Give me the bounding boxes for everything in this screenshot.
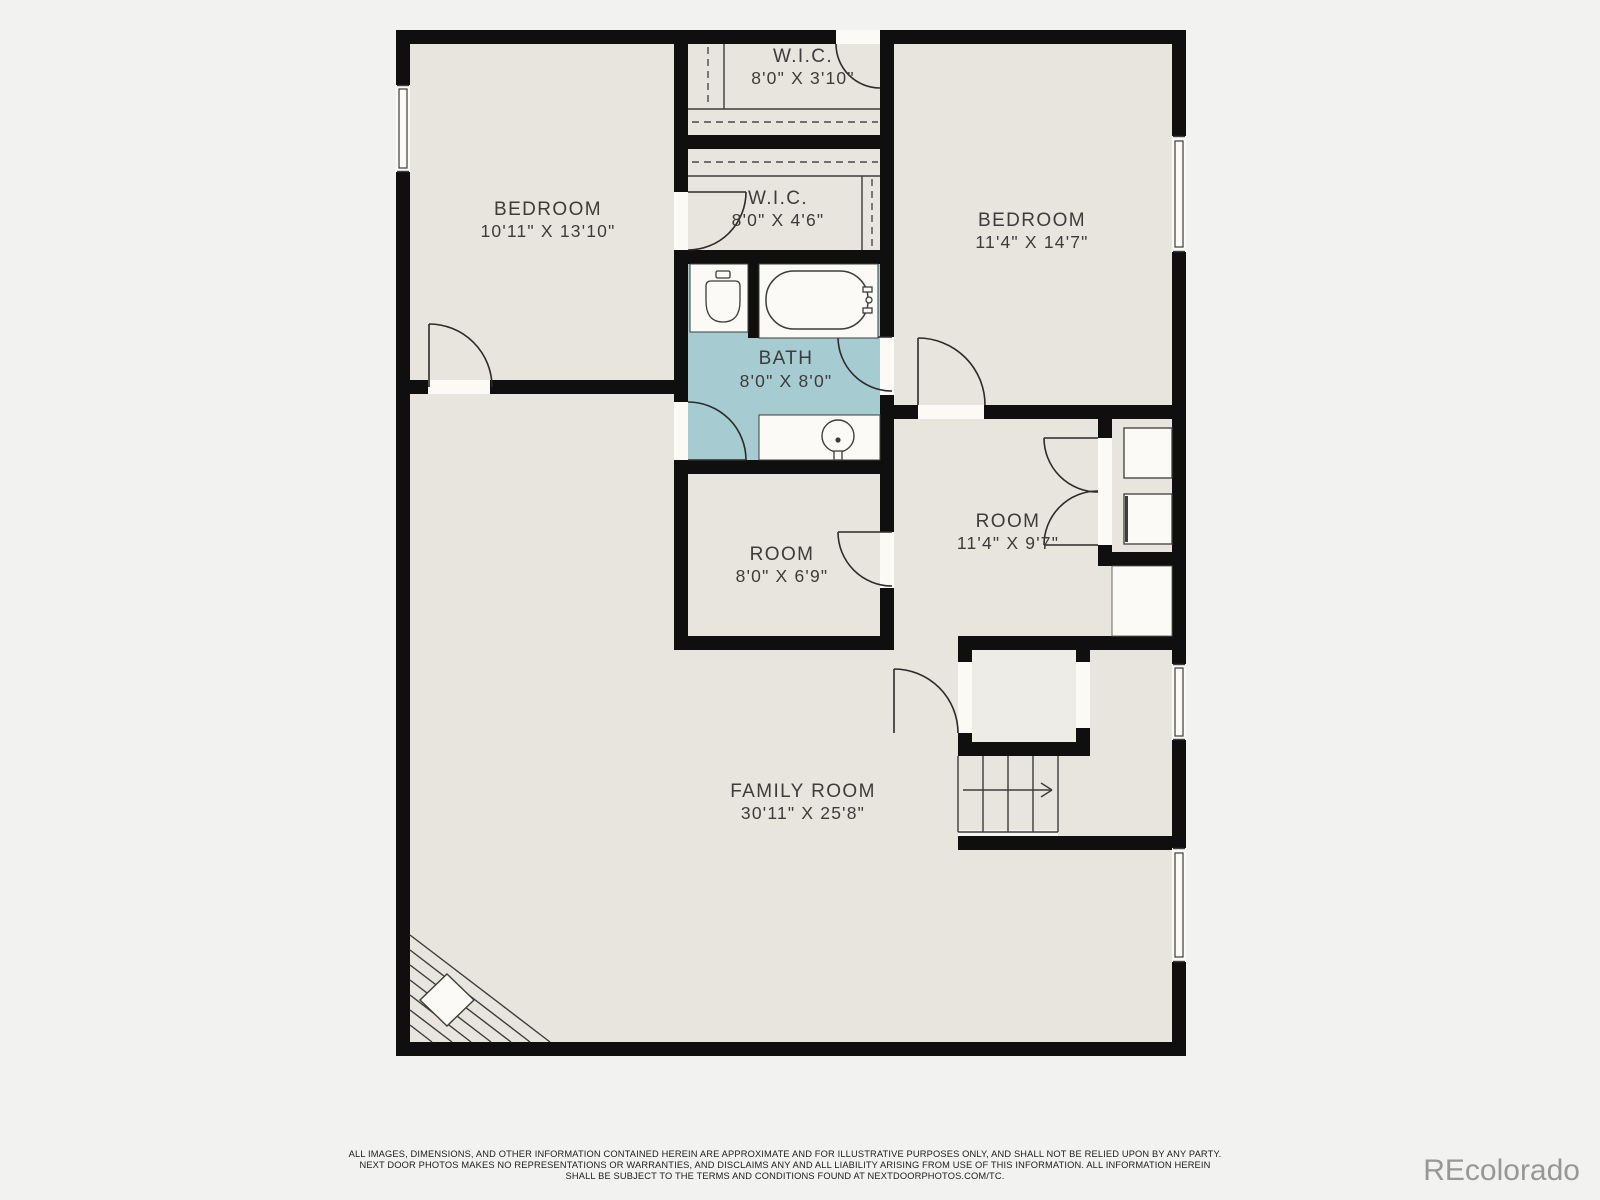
opening-bedroom-right-door: [918, 405, 984, 419]
window-bedroom-right: [1172, 136, 1186, 252]
wall-bath-top: [674, 250, 894, 264]
opening-bath-left-door: [674, 402, 688, 460]
wall-wic-divider: [674, 135, 894, 149]
floor-plan-canvas: W.I.C. 8'0" X 3'10" W.I.C. 8'0" X 4'6" B…: [0, 0, 1600, 1200]
floor-base: [396, 30, 1186, 1056]
outer-wall-bottom: [396, 1042, 1186, 1056]
wall-landing-top: [958, 636, 1186, 650]
wall-mid-left: [674, 44, 688, 650]
opening-landing-right: [1076, 662, 1090, 728]
wall-toilet-stub: [748, 264, 759, 338]
wall-stair-lower: [958, 836, 1186, 850]
opening-wic-top-door: [836, 30, 880, 44]
label-wic-mid-dims: 8'0" X 4'6": [732, 210, 825, 230]
opening-wic-mid-door: [674, 192, 688, 250]
floor-plan-page: W.I.C. 8'0" X 3'10" W.I.C. 8'0" X 4'6" B…: [0, 0, 1600, 1200]
label-room-middle-name: ROOM: [750, 544, 815, 565]
bathtub-icon: [759, 264, 878, 338]
closet-alcove: [1112, 566, 1172, 636]
floor-fills: [396, 30, 1186, 1056]
sink-vanity-icon: [759, 415, 880, 460]
opening-closet-doors: [1098, 438, 1112, 545]
appliance-box-upper: [1124, 428, 1172, 478]
disclaimer-line-2: NEXT DOOR PHOTOS MAKES NO REPRESENTATION…: [359, 1160, 1210, 1170]
label-bedroom-left-name: BEDROOM: [494, 199, 602, 220]
label-bedroom-left-dims: 10'11" X 13'10": [480, 221, 615, 241]
label-family-room-name: FAMILY ROOM: [730, 781, 876, 802]
label-bath-dims: 8'0" X 8'0": [740, 371, 833, 391]
outer-wall-top: [396, 30, 1186, 44]
wall-bath-bottom: [674, 460, 894, 474]
window-stair-hall: [1172, 664, 1186, 740]
appliance-box-lower: [1124, 494, 1172, 544]
wall-room-middle-bottom: [674, 636, 894, 650]
outer-wall-left: [396, 30, 410, 1056]
label-bedroom-right-dims: 11'4" X 14'7": [975, 232, 1088, 252]
label-room-right-dims: 11'4" X 9'7": [957, 533, 1059, 553]
toilet-icon: [690, 264, 748, 332]
label-family-room-dims: 30'11" X 25'8": [741, 803, 865, 823]
label-wic-mid-name: W.I.C.: [748, 188, 808, 209]
opening-bath-right-door: [880, 337, 894, 395]
opening-bedroom-left-door: [428, 380, 490, 394]
label-wic-top-name: W.I.C.: [773, 46, 833, 67]
label-bath-name: BATH: [759, 348, 814, 369]
window-family-room: [1172, 848, 1186, 962]
label-bedroom-right-name: BEDROOM: [978, 210, 1086, 231]
window-bedroom-left: [396, 85, 410, 172]
opening-room-middle-door: [880, 532, 894, 588]
label-wic-top-dims: 8'0" X 3'10": [751, 68, 855, 88]
wall-closet-bottom: [1098, 552, 1186, 566]
watermark-recolorado: REcolorado: [1423, 1154, 1580, 1187]
stair-landing-floor: [972, 650, 1076, 742]
footer: ALL IMAGES, DIMENSIONS, AND OTHER INFORM…: [349, 1149, 1580, 1187]
label-room-right-name: ROOM: [976, 511, 1041, 532]
disclaimer-line-3: SHALL BE SUBJECT TO THE TERMS AND CONDIT…: [566, 1171, 1005, 1181]
opening-landing-left: [958, 662, 972, 733]
disclaimer-line-1: ALL IMAGES, DIMENSIONS, AND OTHER INFORM…: [349, 1149, 1222, 1159]
label-room-middle-dims: 8'0" X 6'9": [736, 566, 829, 586]
wall-landing-bottom: [958, 742, 1090, 756]
